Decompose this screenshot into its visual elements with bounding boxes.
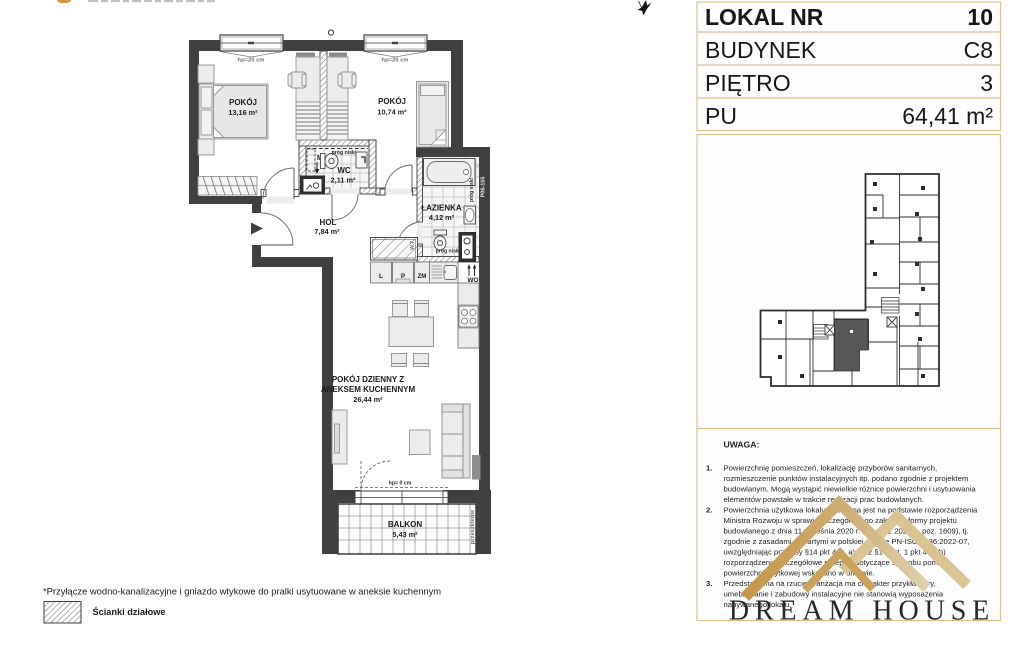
svg-text:C8: C8 (964, 37, 993, 63)
svg-text:elementów powstałe w trakcie r: elementów powstałe w trakcie realizacji … (724, 495, 924, 504)
svg-text:13,16 m²: 13,16 m² (228, 108, 258, 117)
svg-text:*Przyłącze wodno-kanalizacyjne: *Przyłącze wodno-kanalizacyjne i gniazdo… (43, 586, 441, 597)
svg-text:2.: 2. (706, 506, 712, 515)
svg-text:hp=20 cm: hp=20 cm (238, 58, 265, 64)
svg-text:POKÓJ: POKÓJ (378, 97, 406, 106)
svg-text:BALKON: BALKON (388, 520, 422, 529)
svg-text:L: L (379, 273, 383, 280)
svg-text:P06-165: P06-165 (481, 177, 487, 198)
svg-text:budowlanym. Mogą wystąpić niew: budowlanym. Mogą wystąpić niewielkie róż… (724, 485, 977, 494)
svg-text:budowlanego z dnia 11 września: budowlanego z dnia 11 września 2020 r. (… (724, 527, 969, 536)
svg-text:3.: 3. (706, 579, 712, 588)
svg-text:DREAM HOUSE: DREAM HOUSE (729, 596, 995, 627)
svg-text:1.: 1. (706, 464, 712, 473)
svg-text:ZM: ZM (418, 273, 427, 280)
svg-text:10: 10 (967, 4, 993, 30)
svg-text:próg niski: próg niski (332, 150, 357, 156)
svg-text:hp= 0 cm: hp= 0 cm (389, 481, 412, 487)
svg-text:5,43 m²: 5,43 m² (392, 530, 418, 539)
svg-text:przeszklenie: przeszklenie (470, 509, 476, 544)
svg-text:UWAGA:: UWAGA: (724, 440, 760, 450)
svg-text:10,74 m²: 10,74 m² (377, 108, 407, 117)
svg-text:2,11 m²: 2,11 m² (331, 176, 356, 185)
svg-text:LOKAL NR: LOKAL NR (705, 4, 824, 30)
svg-text:rozmieszczenie punktów instala: rozmieszczenie punktów instalacyjnych it… (724, 474, 969, 483)
svg-text:4,12 m²: 4,12 m² (429, 213, 455, 222)
svg-text:Ścianki działowe: Ścianki działowe (93, 606, 166, 617)
svg-text:POKÓJ: POKÓJ (229, 98, 257, 107)
svg-text:3: 3 (980, 70, 993, 96)
svg-text:ŁAZIENKA: ŁAZIENKA (421, 204, 462, 213)
svg-text:Ministra Rozwoju w sprawie szc: Ministra Rozwoju w sprawie szczegółowego… (724, 516, 957, 525)
svg-text:7,84 m²: 7,84 m² (314, 227, 340, 236)
svg-text:P: P (401, 273, 406, 280)
svg-text:PU: PU (705, 103, 737, 129)
svg-text:próg niski: próg niski (436, 249, 461, 255)
svg-text:64,41 m²: 64,41 m² (902, 103, 993, 129)
svg-text:WC: WC (337, 166, 351, 175)
svg-text:BUDYNEK: BUDYNEK (705, 37, 817, 63)
svg-text:26,44 m²: 26,44 m² (353, 395, 383, 404)
svg-text:HOL: HOL (320, 218, 337, 227)
svg-text:próg niski: próg niski (469, 177, 475, 202)
svg-text:POKÓJ DZIENNY Z: POKÓJ DZIENNY Z (332, 375, 404, 384)
svg-text:WO: WO (467, 277, 478, 284)
svg-text:hp=20 cm: hp=20 cm (382, 58, 409, 64)
svg-text:PIĘTRO: PIĘTRO (705, 70, 791, 96)
svg-text:ANEKSEM KUCHENNYM: ANEKSEM KUCHENNYM (321, 385, 416, 394)
svg-text:W.T.: W.T. (410, 240, 416, 250)
svg-text:Powierzchnię pomieszczeń, loka: Powierzchnię pomieszczeń, lokalizację pr… (724, 464, 938, 473)
